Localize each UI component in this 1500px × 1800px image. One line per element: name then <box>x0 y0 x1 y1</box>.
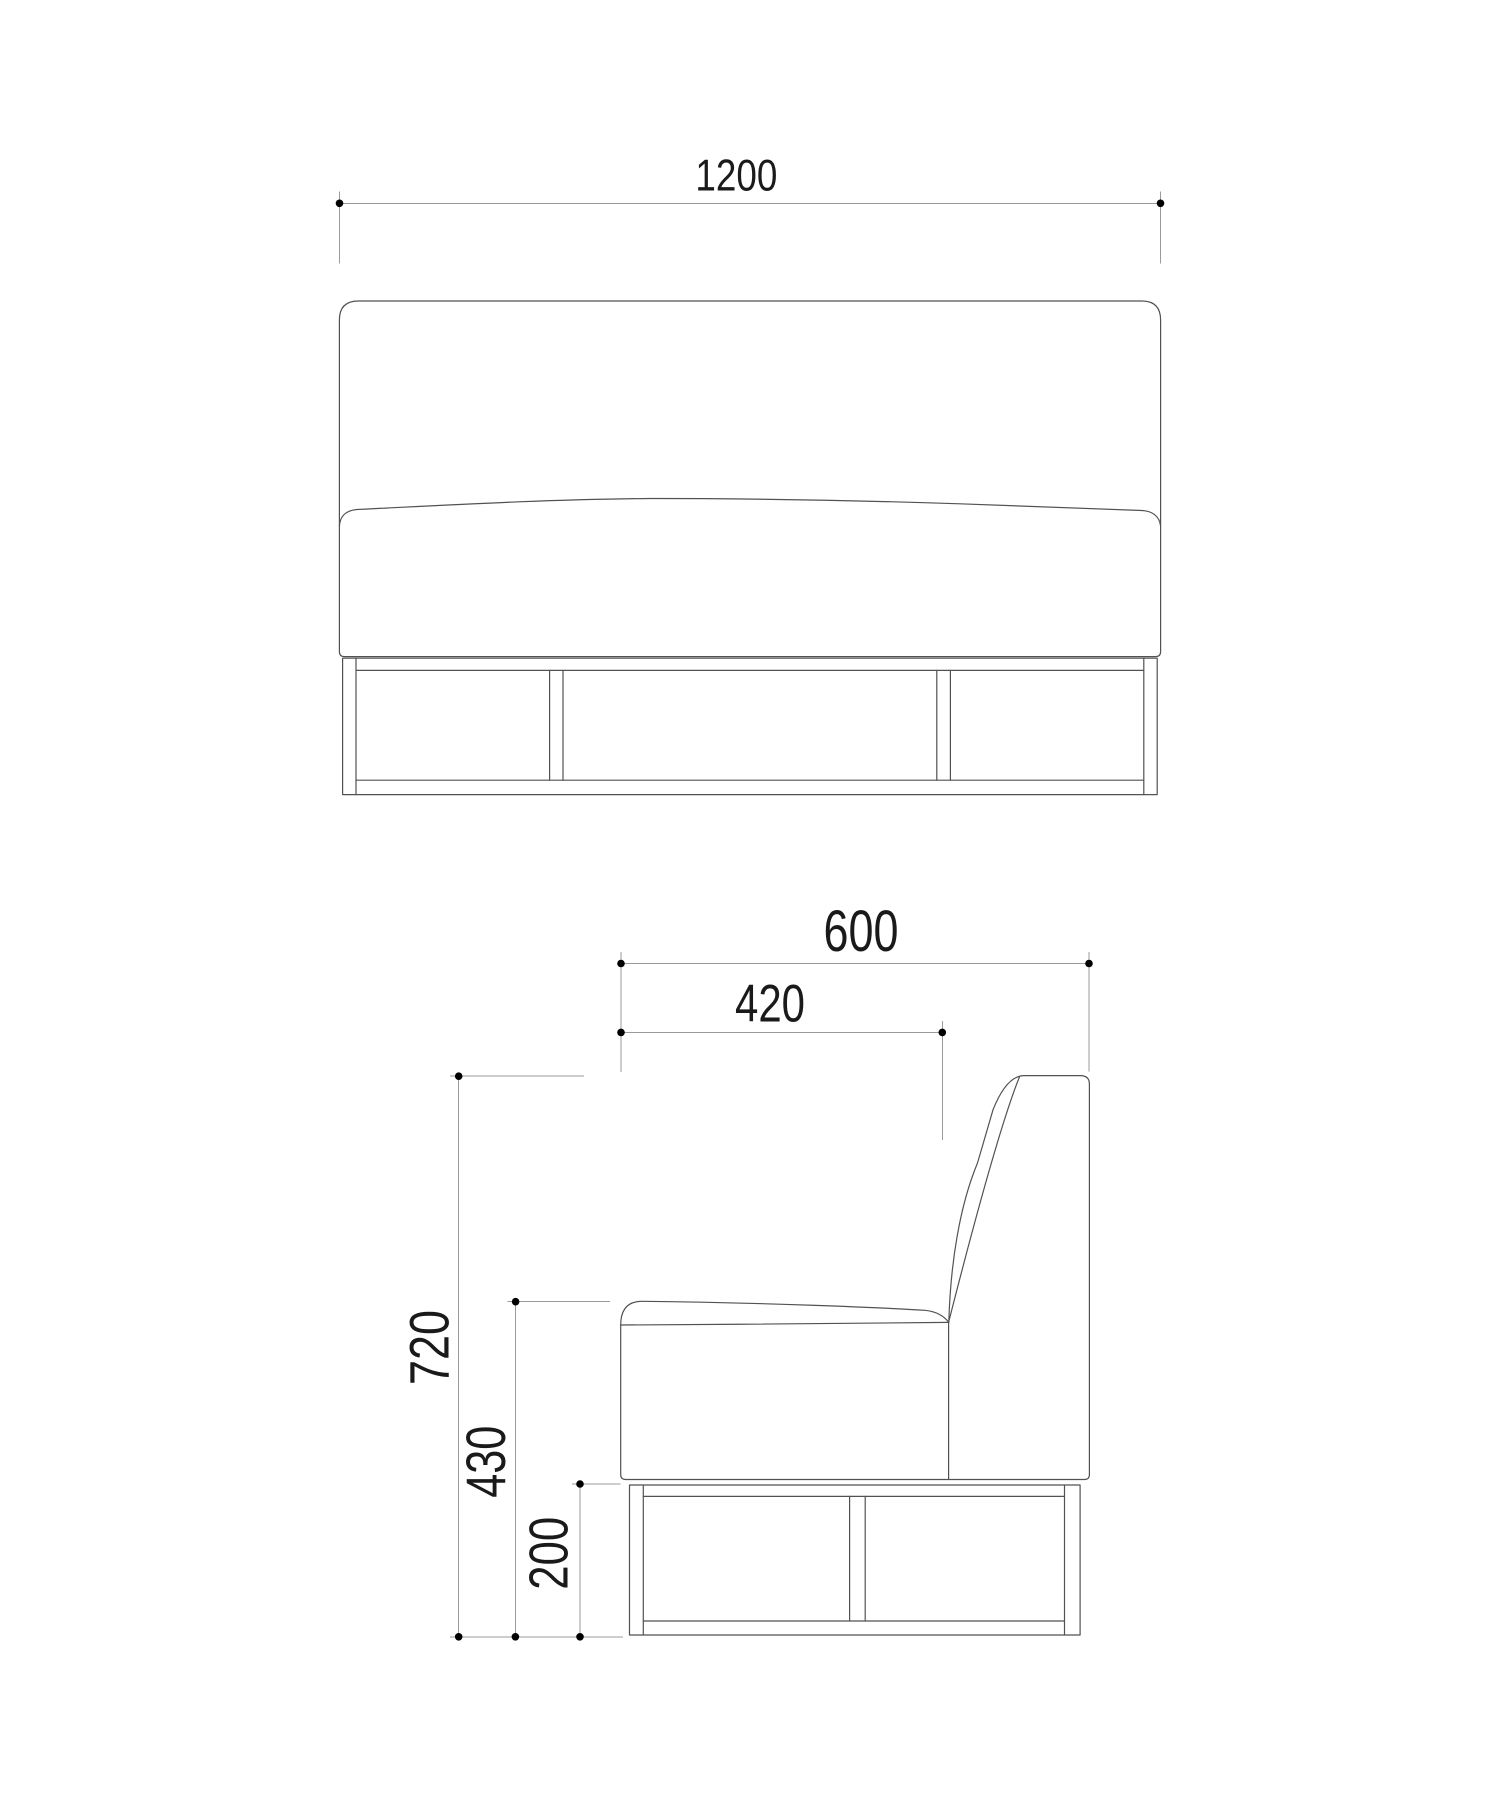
svg-text:720: 720 <box>397 1310 460 1385</box>
svg-text:430: 430 <box>454 1426 517 1498</box>
svg-text:420: 420 <box>735 975 805 1034</box>
svg-text:200: 200 <box>518 1517 580 1590</box>
svg-text:600: 600 <box>824 899 899 964</box>
svg-text:1200: 1200 <box>695 152 777 201</box>
